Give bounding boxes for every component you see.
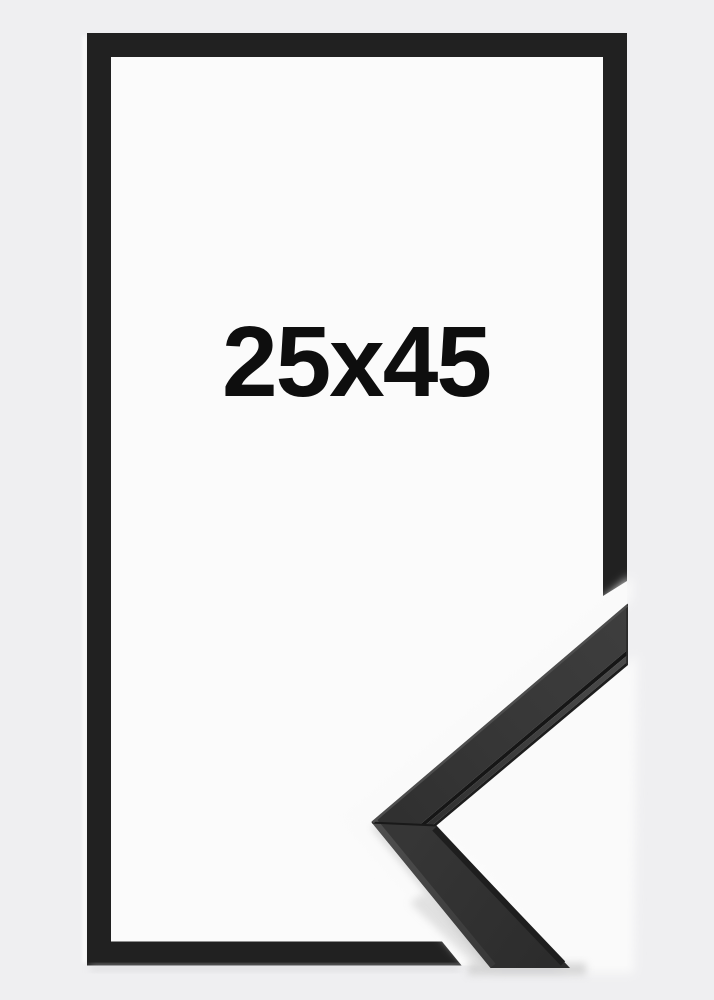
svg-text:25x45: 25x45 [222,306,490,418]
